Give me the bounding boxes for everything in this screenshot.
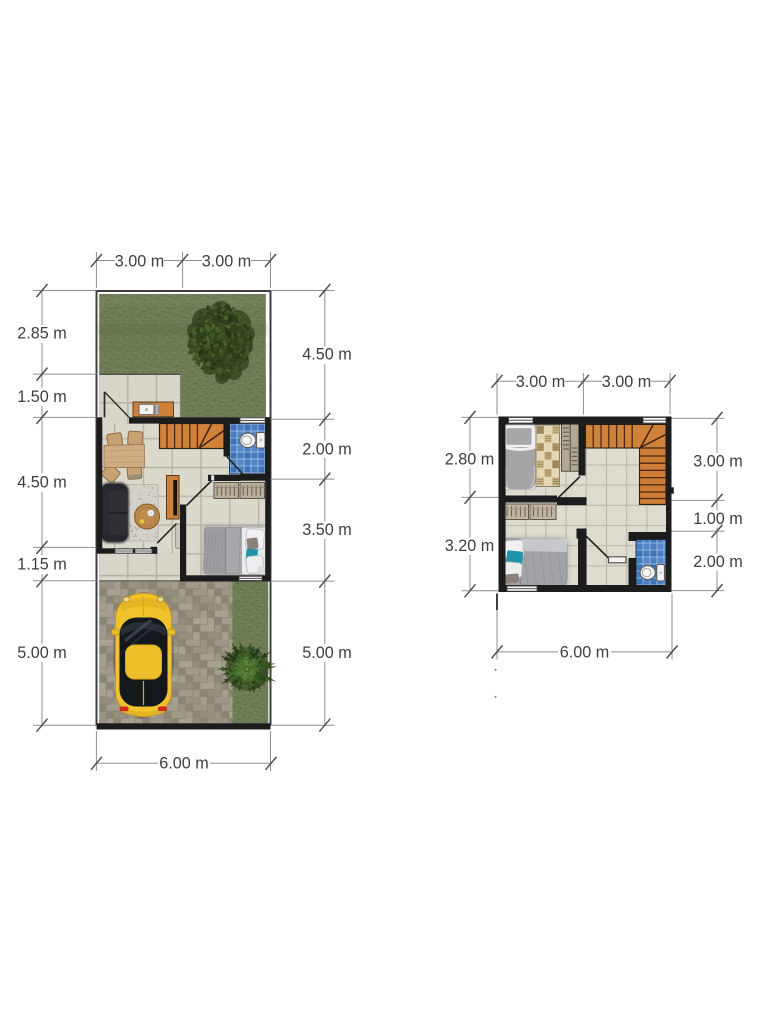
svg-text:3.00 m: 3.00 m [693, 453, 743, 471]
svg-text:3.00 m: 3.00 m [516, 373, 566, 391]
svg-text:6.00 m: 6.00 m [560, 644, 610, 662]
svg-text:6.00 m: 6.00 m [159, 754, 209, 772]
svg-text:1.15 m: 1.15 m [17, 556, 67, 574]
svg-text:3.00 m: 3.00 m [602, 373, 652, 391]
svg-text:2.85 m: 2.85 m [17, 325, 67, 343]
svg-text:3.20 m: 3.20 m [445, 537, 495, 555]
svg-text:4.50 m: 4.50 m [302, 346, 352, 364]
svg-text:3.50 m: 3.50 m [302, 521, 352, 539]
svg-text:2.00 m: 2.00 m [302, 441, 352, 459]
svg-text:4.50 m: 4.50 m [17, 474, 67, 492]
svg-text:5.00 m: 5.00 m [17, 644, 67, 662]
svg-text:2.80 m: 2.80 m [445, 451, 495, 469]
svg-text:3.00 m: 3.00 m [115, 253, 165, 271]
svg-text:1.50 m: 1.50 m [17, 388, 67, 406]
svg-text:1.00 m: 1.00 m [693, 510, 743, 528]
svg-text:5.00 m: 5.00 m [302, 644, 352, 662]
svg-text:2.00 m: 2.00 m [693, 553, 743, 571]
svg-text:3.00 m: 3.00 m [202, 253, 252, 271]
